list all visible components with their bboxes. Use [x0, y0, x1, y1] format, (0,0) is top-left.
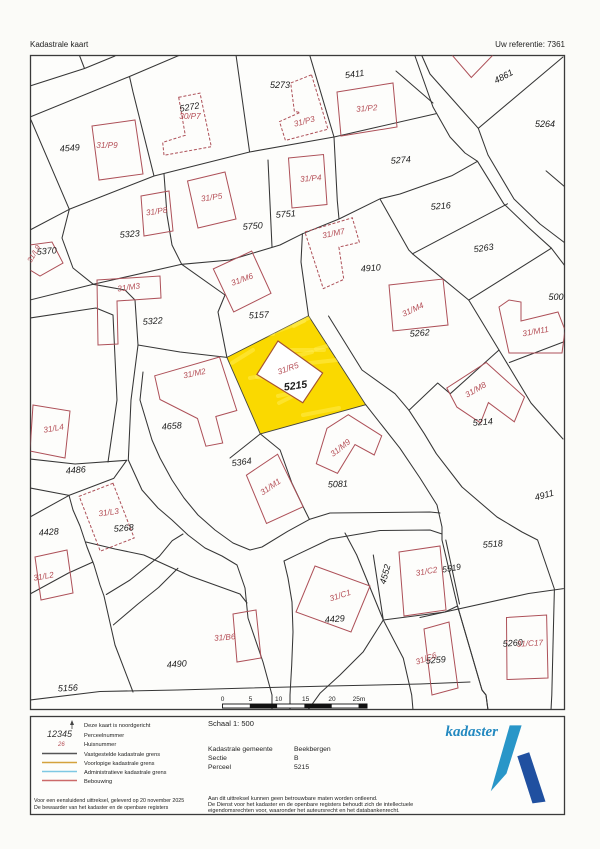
svg-text:Perceelnummer: Perceelnummer — [84, 733, 124, 739]
svg-text:5751: 5751 — [275, 208, 296, 220]
svg-text:0: 0 — [221, 696, 225, 703]
svg-text:31/P4: 31/P4 — [300, 173, 323, 184]
svg-text:4549: 4549 — [59, 142, 80, 154]
svg-text:Voorlopige kadastrale grens: Voorlopige kadastrale grens — [84, 761, 155, 767]
svg-text:5322: 5322 — [142, 315, 163, 327]
svg-text:5750: 5750 — [242, 220, 263, 232]
svg-text:Uw referentie: 7361: Uw referentie: 7361 — [495, 40, 565, 49]
svg-text:4490: 4490 — [166, 658, 187, 670]
svg-text:5216: 5216 — [430, 200, 451, 212]
svg-text:5262: 5262 — [409, 327, 430, 339]
svg-text:5156: 5156 — [58, 682, 79, 693]
svg-text:Vastgestelde kadastrale grens: Vastgestelde kadastrale grens — [84, 752, 160, 758]
svg-text:Deze kaart is noordgericht: Deze kaart is noordgericht — [84, 723, 151, 729]
svg-text:4429: 4429 — [324, 613, 345, 625]
svg-text:Voor een eensluidend uittrekse: Voor een eensluidend uittreksel, gelever… — [34, 798, 184, 804]
svg-text:Perceel: Perceel — [208, 764, 232, 771]
svg-text:5: 5 — [249, 696, 253, 703]
svg-text:31/B6: 31/B6 — [214, 632, 237, 643]
svg-text:5214: 5214 — [472, 416, 493, 428]
svg-text:Huisnummer: Huisnummer — [84, 742, 116, 748]
svg-text:5518: 5518 — [482, 538, 503, 550]
svg-text:31/P2: 31/P2 — [356, 103, 379, 114]
svg-text:25m: 25m — [353, 696, 366, 703]
svg-text:5274: 5274 — [390, 154, 411, 166]
svg-text:B: B — [294, 755, 299, 762]
svg-text:Beekbergen: Beekbergen — [294, 746, 331, 753]
svg-text:4486: 4486 — [65, 464, 86, 476]
svg-text:26: 26 — [57, 742, 65, 748]
svg-text:4428: 4428 — [38, 526, 59, 538]
svg-text:Sectie: Sectie — [208, 755, 227, 762]
svg-text:Kadastrale kaart: Kadastrale kaart — [30, 40, 89, 49]
svg-text:eigendomsrechten voor, waarond: eigendomsrechten voor, waaronder het aut… — [208, 808, 400, 814]
svg-text:30/P7: 30/P7 — [179, 112, 201, 121]
svg-text:31/C17: 31/C17 — [516, 638, 543, 648]
svg-text:Administratieve kadastrale gre: Administratieve kadastrale grens — [84, 770, 167, 776]
svg-text:5268: 5268 — [113, 522, 134, 534]
svg-text:10: 10 — [275, 696, 283, 703]
svg-text:De bewaarder van het kadaster: De bewaarder van het kadaster en de open… — [34, 805, 169, 811]
svg-text:5264: 5264 — [535, 119, 555, 129]
svg-text:5157: 5157 — [249, 309, 271, 320]
svg-text:Kadastrale gemeente: Kadastrale gemeente — [208, 746, 273, 753]
svg-text:20: 20 — [328, 696, 336, 703]
svg-text:15: 15 — [302, 696, 310, 703]
svg-text:kadaster: kadaster — [446, 724, 499, 740]
svg-text:Bebouwing: Bebouwing — [84, 779, 112, 785]
svg-text:500: 500 — [548, 292, 563, 302]
svg-text:12345: 12345 — [47, 729, 73, 739]
svg-text:5081: 5081 — [328, 478, 349, 489]
svg-text:31/P9: 31/P9 — [96, 141, 118, 150]
svg-text:4658: 4658 — [161, 420, 182, 432]
svg-text:5273: 5273 — [270, 80, 290, 90]
svg-text:5323: 5323 — [119, 228, 140, 240]
svg-text:4910: 4910 — [360, 262, 381, 274]
svg-text:Schaal 1: 500: Schaal 1: 500 — [208, 719, 254, 728]
svg-text:5215: 5215 — [294, 764, 309, 771]
